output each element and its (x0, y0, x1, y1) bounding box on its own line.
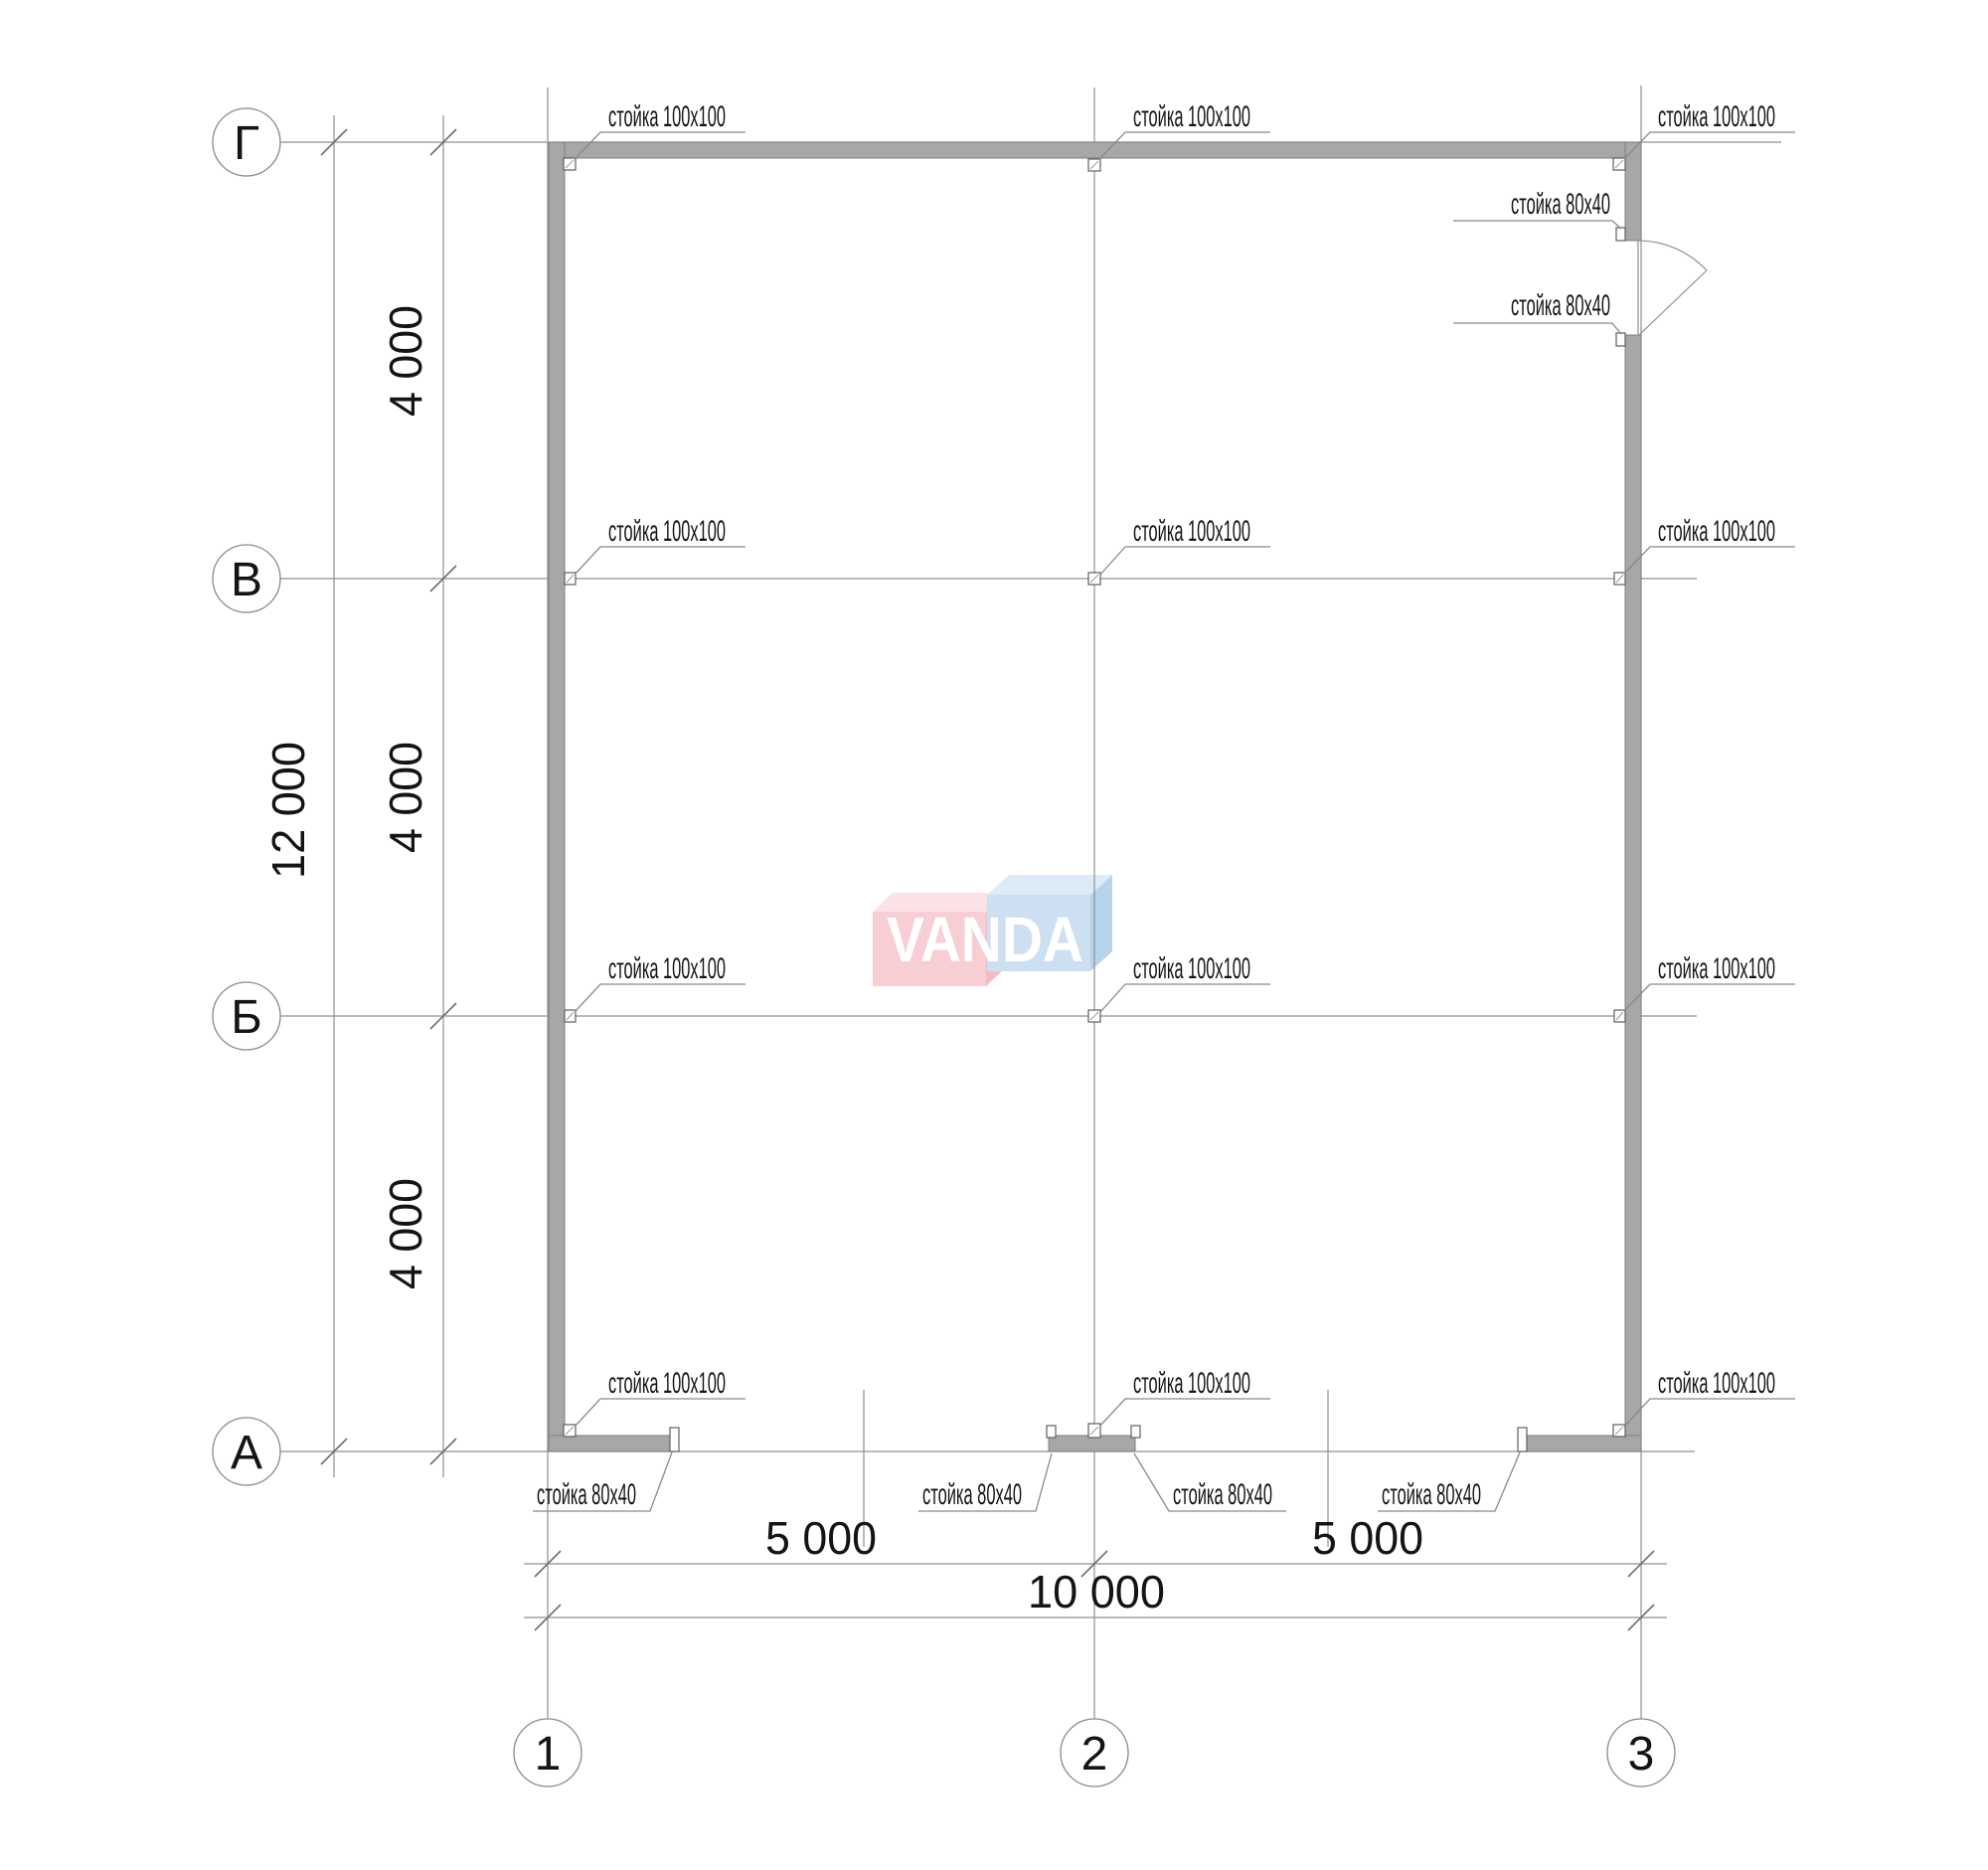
post-100-a3 (1613, 1425, 1625, 1437)
post-label: стойка 100x100 (1133, 952, 1250, 985)
dim-total-height: 12 000 (262, 742, 314, 879)
axis-circle-label: В (231, 554, 262, 606)
post-label: стойка 100x100 (1133, 1367, 1250, 1400)
post-label: стойка 80x40 (922, 1478, 1022, 1511)
axis-circle-label: Г (234, 117, 259, 170)
post-100-annotations: стойка 100x100 стойка 100x100 стойка 100… (575, 100, 1795, 1427)
post-100-v1 (565, 573, 576, 585)
watermark-logo: VANDA (873, 875, 1112, 986)
dim-bay-width-1: 5 000 (765, 1512, 877, 1564)
post-100-g1 (564, 158, 576, 170)
post-label: стойка 100x100 (1658, 1367, 1775, 1400)
post-80-opening1-left (670, 1428, 679, 1451)
post-80-opening2-right (1518, 1428, 1527, 1451)
row-axis-bubble-a: А (213, 1418, 280, 1485)
annotation-post100-a2: стойка 100x100 (1100, 1367, 1270, 1426)
post-100-v3 (1614, 573, 1625, 585)
dim-bay-height-2: 4 000 (380, 742, 431, 853)
dim-bay-width-2: 5 000 (1312, 1512, 1423, 1564)
post-80-door-bottom (1616, 333, 1625, 346)
post-80-center-left (1047, 1426, 1056, 1438)
post-100-g3 (1613, 158, 1625, 170)
annotation-post100-b3: стойка 100x100 (1624, 952, 1795, 1011)
post-label: стойка 100x100 (1658, 515, 1775, 548)
col-axis-bubble-2: 2 (1061, 1719, 1128, 1786)
floor-plan-svg: VANDA (0, 0, 1988, 1870)
post-100-b2 (1088, 1010, 1100, 1022)
brand-wordmark: VANDA (887, 904, 1083, 975)
annotation-post80-door-bottom: стойка 80x40 (1453, 289, 1621, 334)
dim-ticks (321, 129, 1654, 1630)
annotation-post80-door-top: стойка 80x40 (1453, 188, 1621, 229)
posts-80x40 (670, 228, 1625, 1451)
row-axis-bubble-b: Б (213, 982, 280, 1050)
wall-bottom-right (1527, 1436, 1641, 1451)
dim-total-width: 10 000 (1028, 1566, 1165, 1617)
post-80-door-top (1616, 228, 1625, 241)
axis-circle-label: Б (231, 991, 262, 1044)
post-100-g2 (1088, 159, 1100, 171)
door-swing-arc (1639, 241, 1707, 270)
axis-circle-label: 2 (1081, 1728, 1108, 1781)
post-100-b3 (1614, 1010, 1625, 1022)
dim-bay-height-1: 4 000 (380, 305, 431, 417)
annotation-post100-a1: стойка 100x100 (575, 1367, 745, 1427)
post-label: стойка 100x100 (1133, 100, 1250, 133)
post-label: стойка 80x40 (1511, 188, 1610, 221)
post-label: стойка 100x100 (608, 952, 726, 985)
wall-right-upper (1625, 142, 1641, 241)
post-100-b1 (565, 1010, 576, 1022)
post-label: стойка 100x100 (1133, 515, 1250, 548)
annotation-post80-opening1-left: стойка 80x40 (533, 1452, 672, 1511)
annotation-post80-center-right: стойка 80x40 (1134, 1453, 1286, 1511)
annotation-post100-g3: стойка 100x100 (1624, 100, 1795, 159)
door-leaf-line (1639, 270, 1707, 335)
wall-right-lower (1625, 335, 1641, 1451)
row-axis-bubble-g: Г (213, 108, 280, 176)
post-100-v2 (1088, 573, 1100, 585)
annotation-post100-a3: стойка 100x100 (1624, 1367, 1795, 1427)
wall-top (549, 142, 1641, 158)
col-axis-bubble-1: 1 (514, 1719, 581, 1786)
post-100-a1 (564, 1425, 576, 1437)
axis-circle-label: 1 (535, 1728, 562, 1781)
floor-plan-sheet: VANDA (0, 0, 1988, 1870)
post-100-a2 (1088, 1424, 1100, 1438)
post-label: стойка 80x40 (1511, 289, 1610, 322)
annotation-post80-center-left: стойка 80x40 (918, 1453, 1052, 1511)
annotation-post80-opening2-right: стойка 80x40 (1378, 1452, 1520, 1511)
wall-bottom-left (549, 1436, 671, 1451)
door (1638, 241, 1707, 335)
post-label: стойка 80x40 (1382, 1478, 1481, 1511)
annotation-post100-b2: стойка 100x100 (1100, 952, 1270, 1012)
annotation-post100-v3: стойка 100x100 (1624, 515, 1795, 574)
col-axis-bubble-3: 3 (1607, 1719, 1675, 1786)
dim-bay-height-3: 4 000 (380, 1178, 431, 1289)
axis-circle-label: 3 (1628, 1728, 1655, 1781)
row-axis-bubble-v: В (213, 545, 280, 612)
wall-left (549, 142, 565, 1451)
post-label: стойка 80x40 (1173, 1478, 1272, 1511)
post-80-center-right (1131, 1426, 1140, 1438)
annotation-post100-v2: стойка 100x100 (1100, 515, 1270, 575)
annotation-post100-b1: стойка 100x100 (576, 952, 745, 1011)
post-80-annotations: стойка 80x40 стойка 80x40 стойка 80x40 с… (533, 188, 1621, 1511)
post-label: стойка 100x100 (608, 100, 726, 133)
post-label: стойка 100x100 (1658, 100, 1775, 133)
annotation-post100-v1: стойка 100x100 (576, 515, 745, 574)
post-label: стойка 80x40 (537, 1478, 636, 1511)
axis-circle-label: А (231, 1427, 262, 1479)
post-label: стойка 100x100 (608, 515, 726, 548)
dimension-lines (321, 115, 1667, 1630)
post-label: стойка 100x100 (608, 1367, 726, 1400)
post-label: стойка 100x100 (1658, 952, 1775, 985)
